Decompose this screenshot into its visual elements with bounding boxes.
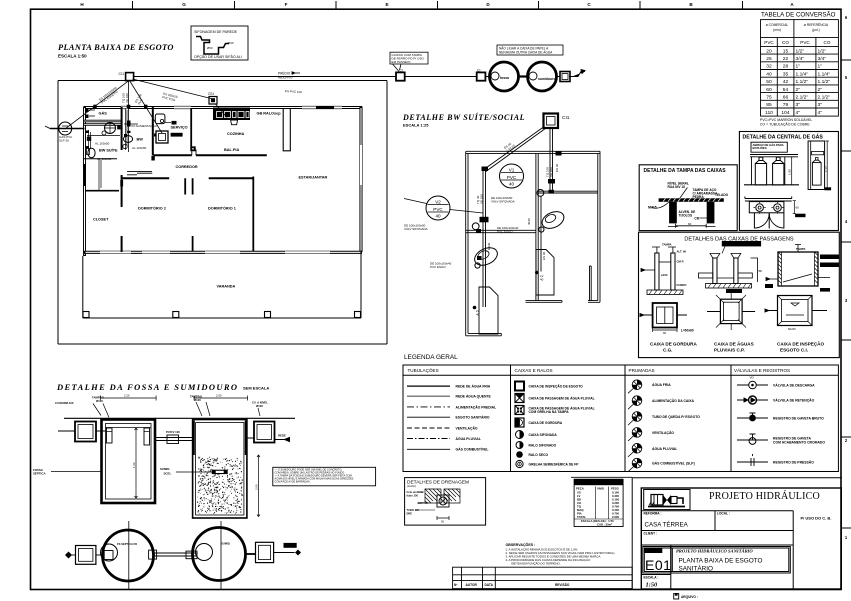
svg-text:CAIXA DE INSPEÇÃO DE ESGOTO: CAIXA DE INSPEÇÃO DE ESGOTO xyxy=(529,383,584,388)
svg-text:VÁLVULAS E REGISTROS: VÁLVULAS E REGISTROS xyxy=(734,367,790,373)
svg-text:2": 2" xyxy=(818,87,823,93)
svg-text:BW: BW xyxy=(137,138,144,142)
svg-text:ESCALA 1:25: ESCALA 1:25 xyxy=(403,123,429,128)
svg-text:sumidouro: sumidouro xyxy=(538,77,556,81)
svg-text:ÁGUA FRIA: ÁGUA FRIA xyxy=(652,382,671,387)
svg-text:ES 40: ES 40 xyxy=(555,163,559,172)
svg-text:CV.NORM.100: CV.NORM.100 xyxy=(55,401,74,405)
svg-text:TUBO DE QUEDA P/ ESGOTO: TUBO DE QUEDA P/ ESGOTO xyxy=(652,415,700,419)
svg-text:60x60: 60x60 xyxy=(788,327,796,331)
svg-text:GB RALOsep: GB RALOsep xyxy=(257,112,282,116)
svg-text:TIJOLOS: TIJOLOS xyxy=(679,213,693,217)
svg-text:40: 40 xyxy=(509,182,515,187)
svg-text:CORREDOR: CORREDOR xyxy=(176,165,198,169)
svg-text:RALO SIFONADO: RALO SIFONADO xyxy=(529,443,557,447)
svg-text:ø COMERCIAL: ø COMERCIAL xyxy=(766,23,789,27)
svg-text:TAMPA: TAMPA xyxy=(662,243,672,247)
svg-text:PVC ESGO: PVC ESGO xyxy=(430,265,446,269)
svg-text:REDE ÁGUA QUENTE: REDE ÁGUA QUENTE xyxy=(456,394,492,399)
svg-text:2.1/2": 2.1/2" xyxy=(796,95,809,101)
svg-text:PLANTA BAIXA DE ESGOTO: PLANTA BAIXA DE ESGOTO xyxy=(679,558,763,565)
svg-text:ALIMENTAÇÃO PREDIAL: ALIMENTAÇÃO PREDIAL xyxy=(456,404,497,409)
svg-text:ø100: ø100 xyxy=(661,273,668,277)
svg-text:CM P.: CM P. xyxy=(677,260,685,264)
svg-text:20: 20 xyxy=(766,48,772,54)
svg-text:G: G xyxy=(182,2,186,7)
svg-text:TELADO: TELADO xyxy=(715,193,729,197)
svg-text:54: 54 xyxy=(783,87,789,93)
svg-text:2": 2" xyxy=(796,87,801,93)
svg-text:CI1: CI1 xyxy=(562,115,570,121)
svg-text:ESCALA :: ESCALA : xyxy=(644,576,659,580)
svg-text:AL.100x50: AL.100x50 xyxy=(95,142,110,146)
svg-text:ESCALA 1:50: ESCALA 1:50 xyxy=(58,54,87,59)
svg-text:VÁLV SIFONADA: VÁLV SIFONADA xyxy=(491,200,515,204)
svg-text:SUMID.: SUMID. xyxy=(221,542,231,546)
svg-text:CM: CM xyxy=(694,217,699,221)
svg-text:BAL.PIA: BAL.PIA xyxy=(224,148,239,152)
svg-text:DETALHES DE DRENAGEM: DETALHES DE DRENAGEM xyxy=(407,480,469,486)
svg-text:CI1: CI1 xyxy=(119,72,125,76)
svg-text:CAIXA DE GORDURA: CAIXA DE GORDURA xyxy=(650,342,697,347)
svg-text:VE 100: VE 100 xyxy=(125,93,129,103)
svg-text:SLP 20: SLP 20 xyxy=(59,139,69,143)
svg-text:OBTIDA EM FUNÇÃO DO TERRENO.: OBTIDA EM FUNÇÃO DO TERRENO. xyxy=(511,561,561,566)
svg-text:4040: 4040 xyxy=(527,218,531,225)
svg-text:DRE: DRE xyxy=(407,511,413,515)
svg-text:ESTAR/JANTAR: ESTAR/JANTAR xyxy=(299,176,328,180)
svg-text:GÁS COMBUSTÍVEL: GÁS COMBUSTÍVEL xyxy=(456,447,489,452)
svg-text:SANITÁRIO: SANITÁRIO xyxy=(679,564,713,573)
svg-text:PESOS ADOTADOS: PESOS ADOTADOS xyxy=(580,481,612,485)
svg-text:60: 60 xyxy=(688,222,692,226)
svg-text:85: 85 xyxy=(766,102,772,108)
svg-text:L=60x60: L=60x60 xyxy=(681,329,694,333)
svg-text:GÁS: GÁS xyxy=(99,111,108,116)
svg-text:CO: CO xyxy=(782,40,789,45)
svg-text:CAD : 35m²: CAD : 35m² xyxy=(597,522,612,526)
svg-text:Ø100: Ø100 xyxy=(96,399,103,403)
svg-text:Ø40: Ø40 xyxy=(228,41,234,45)
svg-text:PROJETO HIDRÁULICO: PROJETO HIDRÁULICO xyxy=(709,490,820,502)
svg-text:ARQUIVO :: ARQUIVO : xyxy=(681,595,698,599)
svg-text:CO = TUBULAÇÃO DE COBRE: CO = TUBULAÇÃO DE COBRE xyxy=(760,122,810,127)
svg-text:/tubo 100: /tubo 100 xyxy=(407,493,419,497)
svg-text:ÁGUA PLUVIAL: ÁGUA PLUVIAL xyxy=(456,436,481,441)
svg-text:VE 100: VE 100 xyxy=(549,167,553,177)
svg-text:SUMID.: SUMID. xyxy=(160,467,170,471)
svg-text:PEDRA: PEDRA xyxy=(693,195,705,199)
svg-text:REGISTRO DE GAVETA BRUTO: REGISTRO DE GAVETA BRUTO xyxy=(773,417,824,421)
svg-text:PVC ESGO: PVC ESGO xyxy=(497,230,513,234)
svg-text:40: 40 xyxy=(435,214,441,219)
svg-text:VENTILAÇÃO: VENTILAÇÃO xyxy=(456,425,478,430)
svg-text:1/2": 1/2" xyxy=(796,48,805,54)
svg-text:3": 3" xyxy=(796,102,801,108)
svg-text:ES40: ES40 xyxy=(487,242,491,250)
svg-text:PVC: PVC xyxy=(764,40,774,45)
svg-text:PRANCHA: PRANCHA xyxy=(646,549,663,553)
svg-text:REDE: REDE xyxy=(278,434,286,438)
svg-text:OPÇÃO DE USAR SIFÃO ALI: OPÇÃO DE USAR SIFÃO ALI xyxy=(194,54,242,59)
svg-text:CLOSET: CLOSET xyxy=(93,218,109,222)
svg-text:F: F xyxy=(285,2,288,7)
svg-text:50: 50 xyxy=(759,269,763,273)
svg-text:NENHUMA OUTRA CAIXA DE ÁGUA: NENHUMA OUTRA CAIXA DE ÁGUA xyxy=(499,51,553,55)
svg-text:1.80: 1.80 xyxy=(788,169,792,175)
svg-text:CAIXA DE GORDURA: CAIXA DE GORDURA xyxy=(529,421,563,425)
svg-text:40: 40 xyxy=(540,278,544,282)
svg-text:DETALHE DA TAMPA DAS CAIXA: DETALHE DA TAMPA DAS CAIXAS xyxy=(644,168,727,174)
svg-text:66: 66 xyxy=(783,95,789,101)
svg-text:(pol.): (pol.) xyxy=(812,28,820,32)
svg-text:15: 15 xyxy=(783,48,789,54)
svg-text:CASA TÉRREA: CASA TÉRREA xyxy=(645,522,689,529)
svg-text:50: 50 xyxy=(766,79,772,85)
svg-text:LAVA: LAVA xyxy=(227,108,234,112)
svg-text:104: 104 xyxy=(781,110,789,116)
svg-text:3/4": 3/4" xyxy=(818,56,827,62)
svg-text:42: 42 xyxy=(783,79,789,85)
svg-text:VÁLVULA DE DESCARGA: VÁLVULA DE DESCARGA xyxy=(773,383,815,388)
svg-text:COZINHA: COZINHA xyxy=(227,132,245,136)
svg-text:BOTIJÕES: BOTIJÕES xyxy=(753,145,767,150)
svg-text:DETALHE BW SUÍTE/SOCIAL: DETALHE BW SUÍTE/SOCIAL xyxy=(402,112,525,122)
svg-text:DATA: DATA xyxy=(485,583,494,587)
svg-text:C.G.: C.G. xyxy=(663,348,672,353)
svg-text:TAMPA: TAMPA xyxy=(796,247,806,251)
svg-text:CAIXA DE PASSAGEM DE ÁGUA PLUV: CAIXA DE PASSAGEM DE ÁGUA PLUVIAL xyxy=(529,395,595,400)
svg-text:PVC: PVC xyxy=(433,207,443,212)
svg-text:P/ USO DO C. B.: P/ USO DO C. B. xyxy=(801,516,832,521)
svg-text:SEM ESCALA: SEM ESCALA xyxy=(243,386,269,391)
svg-text:CAIXAS E RALOS: CAIXAS E RALOS xyxy=(515,368,553,373)
svg-text:CI: CI xyxy=(400,69,403,73)
svg-text:XX ALIMENTAÇÃO: XX ALIMENTAÇÃO xyxy=(131,123,158,128)
svg-text:CS1: CS1 xyxy=(208,92,214,96)
svg-text:ø REFERÊNCIA: ø REFERÊNCIA xyxy=(804,22,829,27)
svg-text:1.1/4": 1.1/4" xyxy=(796,71,809,77)
svg-text:110: 110 xyxy=(765,110,773,116)
svg-text:E01: E01 xyxy=(645,557,671,573)
svg-text:DORMITÓRIO 2: DORMITÓRIO 2 xyxy=(138,206,166,211)
svg-text:35: 35 xyxy=(783,71,789,77)
svg-text:1.1/2": 1.1/2" xyxy=(796,79,809,85)
svg-text:2.00: 2.00 xyxy=(216,394,222,398)
svg-text:AL.100x50: AL.100x50 xyxy=(132,146,147,150)
svg-text:1.1/2": 1.1/2" xyxy=(818,79,831,85)
svg-text:PVC: PVC xyxy=(507,175,517,180)
svg-text:2.00: 2.00 xyxy=(254,484,258,490)
svg-text:CAIXA DE INSPEÇÃO: CAIXA DE INSPEÇÃO xyxy=(777,341,824,347)
svg-text:REFORMA :: REFORMA : xyxy=(644,512,662,516)
svg-text:CI: CI xyxy=(477,69,480,73)
svg-text:DETALHE DA CENTRAL DE GÁS: DETALHE DA CENTRAL DE GÁS xyxy=(743,134,824,141)
svg-text:1:50: 1:50 xyxy=(646,582,659,589)
svg-text:VÁLVULA DE RETENÇÃO: VÁLVULA DE RETENÇÃO xyxy=(773,398,815,403)
svg-text:25: 25 xyxy=(766,56,772,62)
svg-text:EM PASSEIO: EM PASSEIO xyxy=(392,60,411,64)
svg-text:COM FACE A/ DE BARRADAS.: COM FACE A/ DE BARRADAS. xyxy=(275,480,311,484)
svg-text:Ø100: Ø100 xyxy=(256,404,263,408)
svg-text:NM15: NM15 xyxy=(648,206,657,210)
svg-text:4": 4" xyxy=(818,110,823,116)
svg-text:SIFONAGEM DE PAREDE: SIFONAGEM DE PAREDE xyxy=(194,30,238,34)
svg-text:PVC=PVC MARRON SOLDÁVEL: PVC=PVC MARRON SOLDÁVEL xyxy=(760,118,812,122)
svg-text:79: 79 xyxy=(783,102,789,108)
svg-text:PLANTA BAIXA DE ESGOTO: PLANTA BAIXA DE ESGOTO xyxy=(58,43,174,52)
svg-text:PVC: PVC xyxy=(800,40,810,45)
svg-text:ES 40: ES 40 xyxy=(542,251,546,260)
svg-text:2.10: 2.10 xyxy=(823,166,827,172)
svg-text:LEGENDA GERAL: LEGENDA GERAL xyxy=(404,354,458,361)
svg-text:4": 4" xyxy=(796,110,801,116)
svg-text:TUBULAÇÕES: TUBULAÇÕES xyxy=(408,367,439,373)
svg-text:OBSERVAÇÕES :: OBSERVAÇÕES : xyxy=(506,542,536,547)
svg-text:SCEL: SCEL xyxy=(164,472,172,476)
svg-text:ALIMENTAÇÃO DA CAIXA: ALIMENTAÇÃO DA CAIXA xyxy=(652,398,695,403)
svg-text:V2: V2 xyxy=(435,200,441,205)
svg-text:3": 3" xyxy=(818,102,823,108)
svg-text:32: 32 xyxy=(766,64,772,70)
svg-text:LOCAL :: LOCAL : xyxy=(717,512,730,516)
svg-text:SÉPTICA: SÉPTICA xyxy=(33,471,46,476)
svg-text:VE 100: VE 100 xyxy=(480,194,484,204)
svg-text:1": 1" xyxy=(796,64,801,70)
svg-text:60: 60 xyxy=(663,331,667,335)
svg-text:RALO SECO: RALO SECO xyxy=(529,453,549,457)
svg-text:MEIO-FIO: MEIO-FIO xyxy=(278,75,293,79)
svg-text:60: 60 xyxy=(766,87,772,93)
svg-text:Ø100: Ø100 xyxy=(194,398,201,402)
svg-text:DORMITÓRIO 1: DORMITÓRIO 1 xyxy=(208,206,236,211)
svg-text:CAIXA SIFONADA: CAIXA SIFONADA xyxy=(529,433,558,437)
svg-text:3/4": 3/4" xyxy=(796,56,805,62)
svg-text:2.1/2": 2.1/2" xyxy=(818,95,831,101)
svg-text:ÁGUA PLUVIAL: ÁGUA PLUVIAL xyxy=(652,446,677,451)
svg-text:(trecho): (trecho) xyxy=(407,484,416,488)
svg-text:GÁS COMBUSTÍVEL (SLP): GÁS COMBUSTÍVEL (SLP) xyxy=(652,461,695,466)
svg-text:PRUMADAS: PRUMADAS xyxy=(629,368,655,373)
svg-text:E: E xyxy=(385,2,388,7)
svg-text:1.1/4": 1.1/4" xyxy=(818,71,831,77)
svg-text:AUTOR: AUTOR xyxy=(466,583,478,587)
svg-text:COM ACABAMENTO CROMADO: COM ACABAMENTO CROMADO xyxy=(773,440,825,444)
svg-text:28: 28 xyxy=(783,64,789,70)
svg-text:VÁLV SIFONADA: VÁLV SIFONADA xyxy=(404,227,428,231)
svg-text:PROJETO HIDRÁULICO SANITÁRIO: PROJETO HIDRÁULICO SANITÁRIO xyxy=(676,549,753,554)
svg-text:1": 1" xyxy=(818,64,823,70)
svg-text:TABELA DE CONVERSÃO: TABELA DE CONVERSÃO xyxy=(761,12,836,19)
svg-text:RUA NÍV 15: RUA NÍV 15 xyxy=(668,184,686,189)
svg-text:PV/CV 100: PV/CV 100 xyxy=(166,430,180,434)
svg-text:BW SUÍTE: BW SUÍTE xyxy=(99,148,118,153)
svg-text:ESGOTO C.I.: ESGOTO C.I. xyxy=(780,348,808,353)
svg-text:REGISTRO DE PRESSÃO: REGISTRO DE PRESSÃO xyxy=(773,460,814,465)
svg-text:CLIENT :: CLIENT : xyxy=(644,532,657,536)
svg-text:AL.100x50: AL.100x50 xyxy=(97,157,112,161)
svg-text:(mm): (mm) xyxy=(773,28,781,32)
svg-text:2.20: 2.20 xyxy=(124,394,130,398)
svg-text:1.60: 1.60 xyxy=(132,462,136,468)
svg-text:V1: V1 xyxy=(509,168,515,173)
svg-text:FUNDO: FUNDO xyxy=(677,283,688,287)
svg-text:40: 40 xyxy=(766,71,772,77)
svg-text:PLUVIAIS C.P.: PLUVIAIS C.P. xyxy=(714,348,745,353)
svg-text:REVISÃO: REVISÃO xyxy=(555,582,570,587)
svg-text:DETALHE DA FOSSA E SUMIDOU: DETALHE DA FOSSA E SUMIDOURO xyxy=(56,382,238,392)
svg-text:22: 22 xyxy=(783,56,789,62)
svg-text:GRELHA SEMIESFÉRICA DE FP: GRELHA SEMIESFÉRICA DE FP xyxy=(529,461,580,466)
svg-text:VARANDA: VARANDA xyxy=(217,285,236,289)
svg-text:VENTILAÇÃO: VENTILAÇÃO xyxy=(652,430,674,435)
svg-text:75: 75 xyxy=(766,95,772,101)
svg-text:ALT. 60: ALT. 60 xyxy=(677,250,687,254)
svg-text:CAIXA DE ÁGUAS: CAIXA DE ÁGUAS xyxy=(714,341,754,347)
svg-text:60: 60 xyxy=(796,206,800,210)
svg-text:1/2": 1/2" xyxy=(818,48,827,54)
svg-text:COM GRELHA NA TAMPA: COM GRELHA NA TAMPA xyxy=(529,410,570,414)
svg-text:ESGOTO SANITÁRIO: ESGOTO SANITÁRIO xyxy=(456,415,490,420)
svg-text:CO: CO xyxy=(824,40,831,45)
svg-text:40: 40 xyxy=(476,313,480,317)
svg-text:SERVIÇO: SERVIÇO xyxy=(171,126,188,130)
svg-text:UNID: UNID xyxy=(597,487,604,491)
svg-text:REDE DE ÁGUA FRIA: REDE DE ÁGUA FRIA xyxy=(456,384,491,389)
svg-text:Ø50: Ø50 xyxy=(207,46,213,50)
svg-text:fossa: fossa xyxy=(500,76,509,80)
